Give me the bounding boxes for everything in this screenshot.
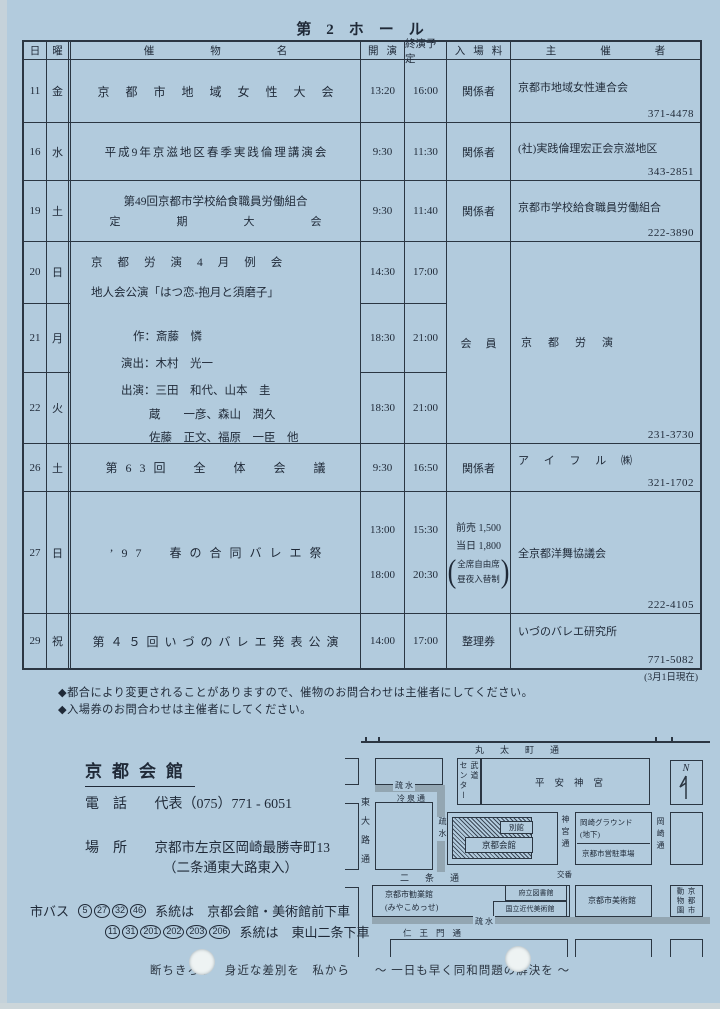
subrow-day: 22 火: [24, 373, 71, 443]
cell-start: 9:30: [361, 444, 405, 491]
map-label-city-museum: 京都市美術館: [588, 895, 636, 906]
map-block-west: [345, 803, 359, 870]
cell-start: 13:20: [361, 60, 405, 122]
organizer-name: 京都市学校給食職員労働組合: [518, 199, 661, 215]
bus-number-badge: 5: [78, 904, 92, 918]
cell-event-merged: 京都労演4月例会 地人会公演「はつ恋-抱月と須磨子」 作：斎藤 憐 演出：木村 …: [71, 242, 361, 443]
cell-fee: 関係者: [447, 181, 511, 241]
subrow-day: 21 月: [24, 304, 71, 374]
cell-day: 29: [24, 614, 47, 668]
cell-end: 16:00: [405, 60, 447, 122]
bus-number-badge: 32: [112, 904, 128, 918]
cell-day: 27: [24, 492, 47, 613]
map-label-okazaki-ground: 岡崎グラウンド: [580, 817, 633, 828]
map-block-west: [345, 758, 359, 785]
cell-end: 17:00: [405, 614, 447, 668]
bus-row-1: 市バス 5 27 32 46 系統は 京都会館・美術館前下車: [30, 901, 350, 920]
cell-day: 16: [24, 123, 47, 180]
organizer-name: (社)実践倫理宏正会京滋地区: [518, 140, 657, 156]
scan-edge-bottom: [0, 1003, 720, 1009]
organizer-phone: 321-1702: [648, 477, 694, 489]
table-row: 11 金 京都市地域女性大会 13:20 16:00 関係者 京都市地域女性連合…: [24, 60, 700, 123]
note-line: ◆入場券のお問合わせは主催者にしてください。: [58, 701, 312, 717]
map-canal-sosui-south: [372, 917, 710, 924]
punch-hole: [189, 949, 215, 975]
address-line2: （二条通東大路東入）: [163, 856, 298, 876]
header-event: 催物名: [71, 42, 361, 59]
fee-parenthetical: ( 全席自由席 昼夜入替制 ): [448, 557, 510, 586]
cell-end: 15:30 20:30: [405, 492, 447, 613]
map-block-ne: [670, 812, 703, 865]
organizer-name: いづのバレエ研究所: [518, 623, 617, 639]
cell-start: 13:00 18:00: [361, 492, 405, 613]
cell-end: 16:50: [405, 444, 447, 491]
organizer-name: ア イ フ ル ㈱: [518, 452, 638, 468]
cell-weekday: 祝: [47, 614, 71, 668]
header-fee: 入場料: [447, 42, 511, 59]
map-block-south: [390, 939, 568, 957]
map-label-miyako-messe: (みやこめっせ): [385, 902, 438, 913]
map-label-bekkan: 別館: [500, 821, 533, 834]
organizer-phone: 343-2851: [648, 166, 694, 178]
subrow-time: 14:30 17:00: [361, 242, 447, 304]
header-weekday: 曜: [47, 42, 71, 59]
map-label-nijo-dori: 二条通: [400, 871, 475, 884]
cell-organizer: ア イ フ ル ㈱ 321-1702: [511, 444, 700, 491]
note-line: ◆都合により変更されることがありますので、催物のお問合わせは主催者にしてください…: [58, 684, 533, 700]
cell-event: 第49回京都市学校給食職員労働組合 定期大会: [71, 181, 361, 241]
cell-fee: 前売 1,500 当日 1,800 ( 全席自由席 昼夜入替制 ): [447, 492, 511, 613]
map-block-west: [345, 887, 359, 957]
cell-organizer: 全京都洋舞協議会 222-4105: [511, 492, 700, 613]
phone-label: 電 話: [85, 793, 137, 813]
organizer-name: 全京都洋舞協議会: [518, 545, 606, 561]
table-row: 29 祝 第４５回いづのバレエ発表公演 14:00 17:00 整理券 いづのバ…: [24, 614, 700, 668]
organizer-phone: 222-4105: [648, 599, 694, 611]
bus-number-badge: 31: [122, 925, 138, 939]
cell-start: 14:00: [361, 614, 405, 668]
merged-day-column: 20 日 21 月 22 火: [24, 242, 71, 443]
cell-day: 26: [24, 444, 47, 491]
bus-number-badge: 202: [163, 925, 184, 939]
bus-number-badge: 27: [94, 904, 110, 918]
table-header-row: 日 曜 催物名 開演 終演予定 入場料 主催者: [24, 42, 700, 60]
page-title: 第 2 ホ ー ル: [0, 18, 720, 39]
organizer-name: 京都労演: [521, 334, 629, 350]
cell-organizer: 京都市地域女性連合会 371-4478: [511, 60, 700, 122]
map-label-kyoto-kaikan: 京都会館: [465, 837, 533, 853]
place-label: 場 所: [85, 837, 137, 857]
bus-number-badge: 203: [186, 925, 207, 939]
organizer-phone: 771-5082: [648, 654, 694, 666]
header-organizer: 主催者: [511, 42, 700, 59]
map-label-koban: 交番: [557, 869, 572, 880]
venue-name: 京都会館: [85, 757, 195, 787]
header-start: 開演: [361, 42, 405, 59]
cell-organizer: 京都労演 231-3730: [511, 242, 700, 443]
cell-organizer: (社)実践倫理宏正会京滋地区 343-2851: [511, 123, 700, 180]
cell-day: 19: [24, 181, 47, 241]
map-label-zoo: 京都市 動物園: [675, 887, 697, 916]
cell-weekday: 土: [47, 181, 71, 241]
subrow-day: 20 日: [24, 242, 71, 304]
map-label-jingu-dori: 神宮通: [560, 815, 571, 851]
cell-end: 11:30: [405, 123, 447, 180]
map-label-higashioji-dori: 東大路通: [359, 797, 372, 873]
map-block-south: [575, 939, 652, 957]
organizer-phone: 231-3730: [648, 429, 694, 441]
bus-row-2: 11 31 201 202 203 206 系統は 東山二条下車: [104, 922, 370, 941]
location-map: 丸太町通 東大路通 武道 センター 平安神宮 N 疏 水 冷 泉 通 疏水: [345, 737, 710, 957]
bus-route-text: 系統は 京都会館・美術館前下車: [155, 901, 350, 920]
flyer-page: 第 2 ホ ー ル 日 曜 催物名 開演 終演予定 入場料 主催者 11 金 京…: [0, 0, 720, 1009]
map-block-b1: [375, 802, 433, 870]
cell-event: 京都市地域女性大会: [71, 60, 361, 122]
cell-event: 平成9年京滋地区春季実践倫理講演会: [71, 123, 361, 180]
cell-weekday: 土: [47, 444, 71, 491]
map-divider: [577, 843, 650, 844]
cell-weekday: 水: [47, 123, 71, 180]
cell-fee: 関係者: [447, 444, 511, 491]
venue-phone-row: 電 話 代表（075）771 - 6051: [85, 793, 292, 813]
merged-time-column: 14:30 17:00 18:30 21:00 18:30 21:00: [361, 242, 447, 443]
map-label-chika: (地下): [580, 829, 600, 840]
schedule-table: 日 曜 催物名 開演 終演予定 入場料 主催者 11 金 京都市地域女性大会 1…: [22, 40, 702, 670]
map-block-south: [670, 939, 703, 957]
cell-end: 11:40: [405, 181, 447, 241]
organizer-phone: 371-4478: [648, 108, 694, 120]
cell-day: 11: [24, 60, 47, 122]
map-label-budo-center: 武道 センター: [458, 761, 480, 801]
north-compass-icon: N: [679, 764, 693, 800]
cell-start: 9:30: [361, 123, 405, 180]
map-label-momak: 国立近代美術館: [493, 901, 567, 917]
header-end: 終演予定: [405, 42, 447, 59]
table-row: 27 日 ’97 春の合同バレエ祭 13:00 18:00 15:30 20:3…: [24, 492, 700, 614]
cell-event: ’97 春の合同バレエ祭: [71, 492, 361, 613]
cell-fee: 会員: [447, 242, 511, 443]
cell-organizer: いづのバレエ研究所 771-5082: [511, 614, 700, 668]
cell-weekday: 日: [47, 492, 71, 613]
address-line1: 京都市左京区岡崎最勝寺町13: [155, 840, 331, 855]
map-label-niomon-dori: 仁王門通: [403, 927, 469, 939]
table-row: 26 土 第63回 全 体 会 議 9:30 16:50 関係者 ア イ フ ル…: [24, 444, 700, 492]
map-label-okazaki-dori: 岡崎通: [655, 817, 666, 853]
organizer-phone: 222-3890: [648, 227, 694, 239]
map-label-marutamachi-dori: 丸太町通: [475, 743, 575, 756]
cell-fee: 関係者: [447, 60, 511, 122]
bus-label: 市バス: [30, 901, 69, 920]
table-row: 16 水 平成9年京滋地区春季実践倫理講演会 9:30 11:30 関係者 (社…: [24, 123, 700, 181]
header-day: 日: [24, 42, 47, 59]
bus-number-badge: 206: [209, 925, 230, 939]
scan-edge-left: [0, 0, 7, 1009]
organizer-name: 京都市地域女性連合会: [518, 79, 628, 95]
subrow-time: 18:30 21:00: [361, 304, 447, 374]
bus-number-badge: 201: [140, 925, 161, 939]
venue-place-row: 場 所 京都市左京区岡崎最勝寺町13: [85, 836, 330, 857]
map-label-city-parking: 京都市営駐車場: [582, 848, 635, 859]
cell-organizer: 京都市学校給食職員労働組合 222-3890: [511, 181, 700, 241]
slogan-text: 断ちきろう 身近な差別を 私から ～ 一日も早く同和問題の解決を ～: [0, 962, 720, 978]
map-label-heian-jingu: 平安神宮: [535, 775, 613, 789]
map-label-kangyokan: 京都市勧業館: [385, 889, 433, 900]
table-row: 19 土 第49回京都市学校給食職員労働組合 定期大会 9:30 11:40 関…: [24, 181, 700, 242]
table-row-merged-20-22: 20 日 21 月 22 火 京都労演4月例会 地人会公演「はつ恋-抱月と須磨子…: [24, 242, 700, 444]
as-of-date: (3月1日現在): [644, 669, 698, 683]
cell-event: 第４５回いづのバレエ発表公演: [71, 614, 361, 668]
map-label-pref-library: 府立図書館: [505, 885, 567, 901]
phone-number: 代表（075）771 - 6051: [155, 797, 293, 812]
subrow-time: 18:30 21:00: [361, 373, 447, 443]
cell-fee: 整理券: [447, 614, 511, 668]
bus-number-badge: 46: [130, 904, 146, 918]
map-label-sosui: 疏 水: [393, 780, 415, 791]
punch-hole: [505, 946, 531, 972]
cell-start: 9:30: [361, 181, 405, 241]
bus-number-badge: 11: [105, 925, 120, 939]
map-label-sosui-south: 疏 水: [473, 916, 495, 927]
cell-fee: 関係者: [447, 123, 511, 180]
cell-event: 第63回 全 体 会 議: [71, 444, 361, 491]
cell-weekday: 金: [47, 60, 71, 122]
